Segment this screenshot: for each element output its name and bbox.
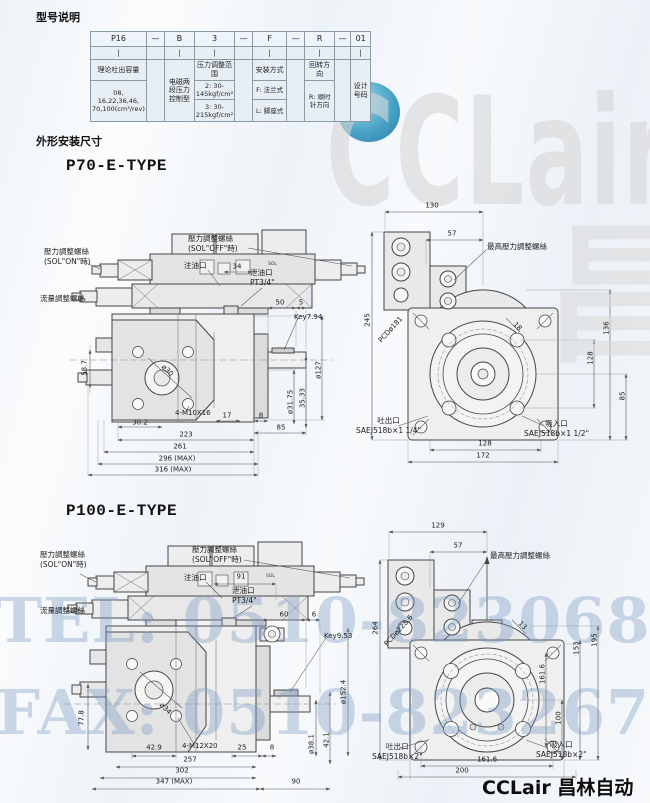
p70-dim-5: 5 (299, 298, 303, 307)
p70-flow-screw-label: 流量調整螺絲 (40, 294, 85, 304)
catalog-page: CCLair 昌林自动化 TEL: 0510-82306871 FAX: 051… (0, 0, 650, 803)
displacement-values: 08, 16,22,36,46, 70,100(cm³/rev) (91, 81, 147, 122)
displacement-header: 理论吐出容量 (91, 60, 147, 81)
p100-sol-off-label: 壓力調整螺絲 (SOL"OFF"時) (192, 545, 242, 565)
p100-dim-161-6: 161.6 (477, 755, 497, 764)
connector-cell: | (164, 47, 194, 60)
spacer-cell (146, 60, 164, 122)
p70-dim-85-rear: 85 (618, 392, 627, 401)
p70-dim-57: 57 (448, 229, 457, 238)
section-title-model-code: 型号说明 (36, 9, 80, 25)
p100-dim-90: 90 (292, 777, 301, 786)
footer-brand-text: CCLair 昌林自动化 (482, 773, 650, 803)
p100-max-pressure-label: 最高壓力調整螺絲 (490, 551, 550, 561)
p70-dim-35-33: 35.33 (298, 388, 307, 408)
pressure-range-v2: 3: 30-215kgf/cm² (194, 100, 234, 122)
pressure-range-v1: 2: 30-145kgf/cm² (194, 81, 234, 100)
p70-dim-172: 172 (476, 451, 489, 460)
p70-outlet-label: 吐出口 SAEJ518b×1 1/4" (356, 416, 421, 436)
control-type-cell: 电磁两段压力控制型 (164, 60, 194, 122)
table-row: 08, 16,22,36,46, 70,100(cm³/rev) 2: 30-1… (91, 81, 371, 100)
p70-dim-296: 296 (MAX) (159, 454, 196, 463)
p70-dim-58-7: 58.7 (80, 360, 89, 376)
code-cell: B (164, 32, 194, 47)
p70-dia-31-75: ø31.75 (286, 390, 295, 414)
spacer-cell (287, 60, 305, 122)
table-row: 理论吐出容量 电磁两段压力控制型 压力调整范围 安装方式 回转方向 设计号码 (91, 60, 371, 81)
p70-side-view-drawing (70, 230, 365, 476)
p100-dim-302: 302 (175, 766, 188, 775)
p100-sol-marking: SOL (266, 574, 275, 580)
connector-cell: | (351, 47, 371, 60)
p70-dim-130: 130 (425, 201, 438, 210)
connector-cell: | (91, 47, 147, 60)
code-cell: 01 (351, 32, 371, 47)
p70-type-title: P70-E-TYPE (66, 157, 167, 175)
p70-dim-136: 136 (602, 321, 611, 334)
p100-dim-100: 100 (554, 711, 563, 724)
p70-dim-245: 245 (363, 313, 372, 326)
p100-side-view-drawing (64, 542, 364, 789)
pressure-range-header: 压力调整范围 (194, 60, 234, 81)
p100-dim-153: 153 (572, 641, 581, 654)
rotation-v1: R: 顺时针方向 (305, 81, 335, 122)
p100-bolt-label: 4-M12X20 (182, 742, 218, 751)
p70-drain-label: 泄油口 PT3/4" (250, 268, 275, 288)
p70-inlet-label: 吸入口 SAEJ518b×1 1/2" (524, 419, 589, 439)
p70-dim-34: 34 (233, 262, 242, 271)
code-row: P16 — B 3 — F — R — 01 (91, 32, 371, 47)
p100-dim-6: 6 (312, 610, 316, 619)
p70-dim-50: 50 (276, 298, 285, 307)
p70-dia-127: ø127 (314, 361, 323, 379)
p100-inlet-label: 吸入口 SAEJ518b×2" (536, 740, 587, 760)
p70-bolt-label: 4-M10X16 (175, 409, 211, 418)
p100-dim-57: 57 (454, 541, 463, 550)
code-cell: — (146, 32, 164, 47)
p100-dim-195: 195 (590, 633, 599, 646)
p100-oil-fill-label: 注油口 (184, 573, 207, 583)
p100-dim-264: 264 (371, 621, 380, 634)
code-cell: P16 (91, 32, 147, 47)
p100-dim-8: 8 (270, 743, 274, 752)
p100-type-title: P100-E-TYPE (66, 502, 177, 520)
spacer-cell (335, 60, 351, 122)
connector-cell (335, 47, 351, 60)
spacer-cell (235, 60, 253, 122)
code-cell: — (235, 32, 253, 47)
p100-dim-200: 200 (455, 766, 468, 775)
connector-cell (235, 47, 253, 60)
mounting-v2: L: 脚座式 (253, 100, 287, 122)
model-code-table: P16 — B 3 — F — R — 01 | | | | | | 理论吐出容… (90, 31, 371, 122)
p70-max-pressure-label: 最高壓力調整螺絲 (487, 242, 547, 252)
rotation-header: 回转方向 (305, 60, 335, 81)
p70-key-label: Key7.94 (294, 313, 322, 322)
connector-cell (146, 47, 164, 60)
connector-cell (287, 47, 305, 60)
p100-dim-161-6-v: 161.6 (538, 664, 547, 684)
p100-flow-screw-label: 流量調整螺絲 (40, 606, 85, 616)
p100-dim-129: 129 (431, 521, 444, 530)
p70-dim-128-v: 128 (586, 351, 595, 364)
p100-dim-25: 25 (238, 743, 247, 752)
code-cell: — (287, 32, 305, 47)
code-cell: — (335, 32, 351, 47)
p70-dim-128: 128 (478, 439, 491, 448)
p100-dia-152-4: ø152.4 (339, 680, 348, 704)
p70-oil-fill-label: 注油口 (184, 261, 207, 271)
mounting-header: 安装方式 (253, 60, 287, 81)
p70-dim-17: 17 (223, 411, 232, 420)
p70-dim-30-2: 30.2 (132, 418, 148, 427)
code-cell: F (253, 32, 287, 47)
p100-dim-42-9: 42.9 (146, 743, 162, 752)
connector-cell: | (305, 47, 335, 60)
code-cell: 3 (194, 32, 234, 47)
section-title-dimensions: 外形安装尺寸 (36, 133, 102, 149)
p100-drain-label: 泄油口 PT3/4" (232, 586, 257, 606)
p100-sol-on-label: 壓力調整螺絲 (SOL"ON"時) (40, 550, 87, 570)
p100-outlet-label: 吐出口 SAEJ518b×2" (372, 742, 423, 762)
p70-dim-85: 85 (277, 423, 286, 432)
p100-key-label: Key9.53 (324, 632, 352, 641)
p100-dim-77-8: 77.8 (77, 710, 86, 726)
mounting-v1: F: 法兰式 (253, 81, 287, 100)
connector-cell: | (253, 47, 287, 60)
p100-dim-60: 60 (280, 610, 289, 619)
design-number-cell: 设计号码 (351, 60, 371, 122)
p70-dim-223: 223 (179, 430, 192, 439)
p70-sol-marking: SOL (268, 262, 277, 268)
p70-sol-on-label: 壓力調整螺絲 (SOL"ON"時) (44, 247, 91, 267)
p100-dim-42-1: 42.1 (322, 732, 331, 748)
connector-row: | | | | | | (91, 47, 371, 60)
code-cell: R (305, 32, 335, 47)
p70-dim-316: 316 (MAX) (155, 465, 192, 474)
p100-dim-257: 257 (183, 755, 196, 764)
connector-cell: | (194, 47, 234, 60)
p70-dim-261: 261 (173, 442, 186, 451)
p70-sol-off-label: 壓力調整螺絲 (SOL"OFF"時) (188, 234, 238, 254)
p70-dim-8: 8 (259, 411, 263, 420)
p100-dia-38-1: ø38.1 (307, 734, 316, 754)
p100-dim-347: 347 (MAX) (156, 777, 193, 786)
p100-dim-91: 91 (237, 572, 246, 581)
